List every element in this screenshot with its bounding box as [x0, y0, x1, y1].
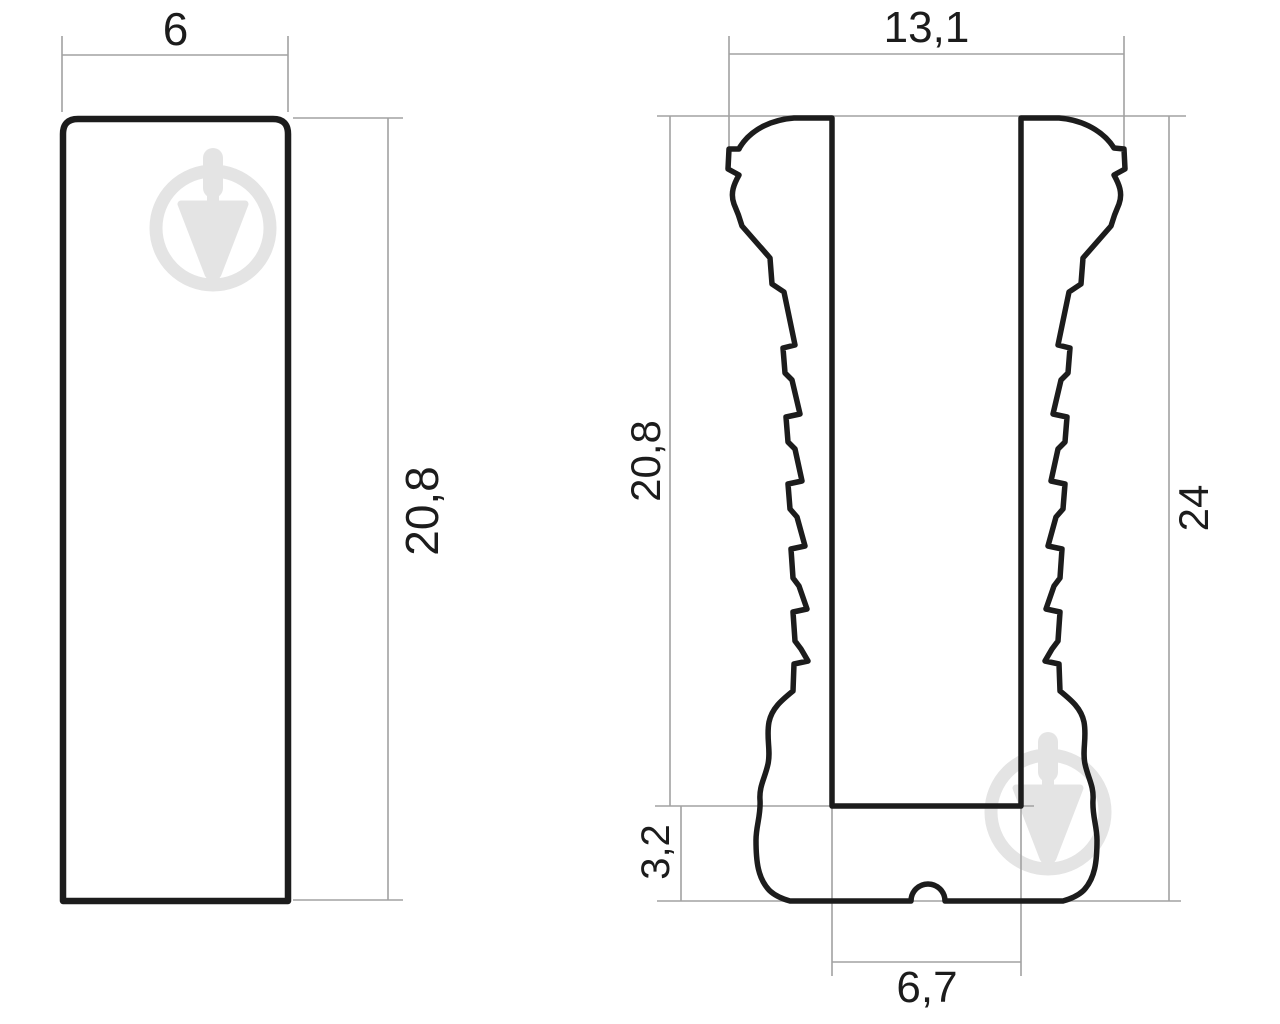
- dim-label-left-height: 20,8: [399, 466, 445, 556]
- left-view: [62, 36, 403, 900]
- right-profile-outline: [728, 118, 1125, 901]
- watermark-left-view: [156, 148, 270, 285]
- dim-label-right-base-height: 3,2: [636, 824, 676, 880]
- technical-drawing-canvas: 6 20,8 13,1 20,8 24 3,2 6,7: [0, 0, 1280, 1024]
- dim-label-right-slot-width: 6,7: [832, 966, 1022, 1010]
- dim-label-right-slot-depth: 20,8: [625, 420, 667, 502]
- dim-label-left-width: 6: [63, 6, 288, 52]
- left-profile-outline: [63, 119, 288, 901]
- dim-label-right-total-height: 24: [1173, 485, 1215, 532]
- watermark-right-view: [991, 732, 1105, 869]
- dim-label-right-top-width: 13,1: [729, 6, 1124, 50]
